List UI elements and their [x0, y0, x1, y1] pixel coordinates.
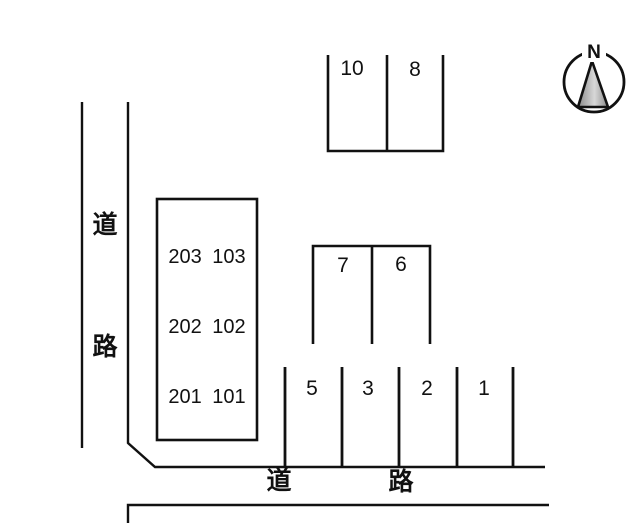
- compass-needle-icon: [578, 61, 608, 107]
- bottom-road-lines: [128, 505, 549, 523]
- parking-stall-3: 3: [343, 376, 393, 402]
- parking-stall-6: 6: [376, 252, 426, 278]
- parking-stall-5: 5: [287, 376, 337, 402]
- parking-stall-1: 1: [459, 376, 509, 402]
- bottom-road-label-ro: 路: [387, 468, 415, 496]
- parking-stall-2: 2: [402, 376, 452, 402]
- building-room-row-1f: 201 101: [157, 384, 257, 410]
- parking-stall-8: 8: [390, 57, 440, 83]
- parking-stall-7: 7: [318, 253, 368, 279]
- parking-stall-10: 10: [327, 56, 377, 82]
- left-road-label-michi: 道: [91, 211, 119, 239]
- compass-north-label: N: [582, 43, 606, 62]
- bottom-road-label-michi: 道: [265, 467, 293, 495]
- parking-layout-diagram: N 道 路 道 路 203 103 202 102 201 101 10 8 7…: [0, 0, 640, 531]
- building-room-row-3f: 203 103: [157, 244, 257, 270]
- left-road-label-ro: 路: [91, 333, 119, 361]
- building-room-row-2f: 202 102: [157, 314, 257, 340]
